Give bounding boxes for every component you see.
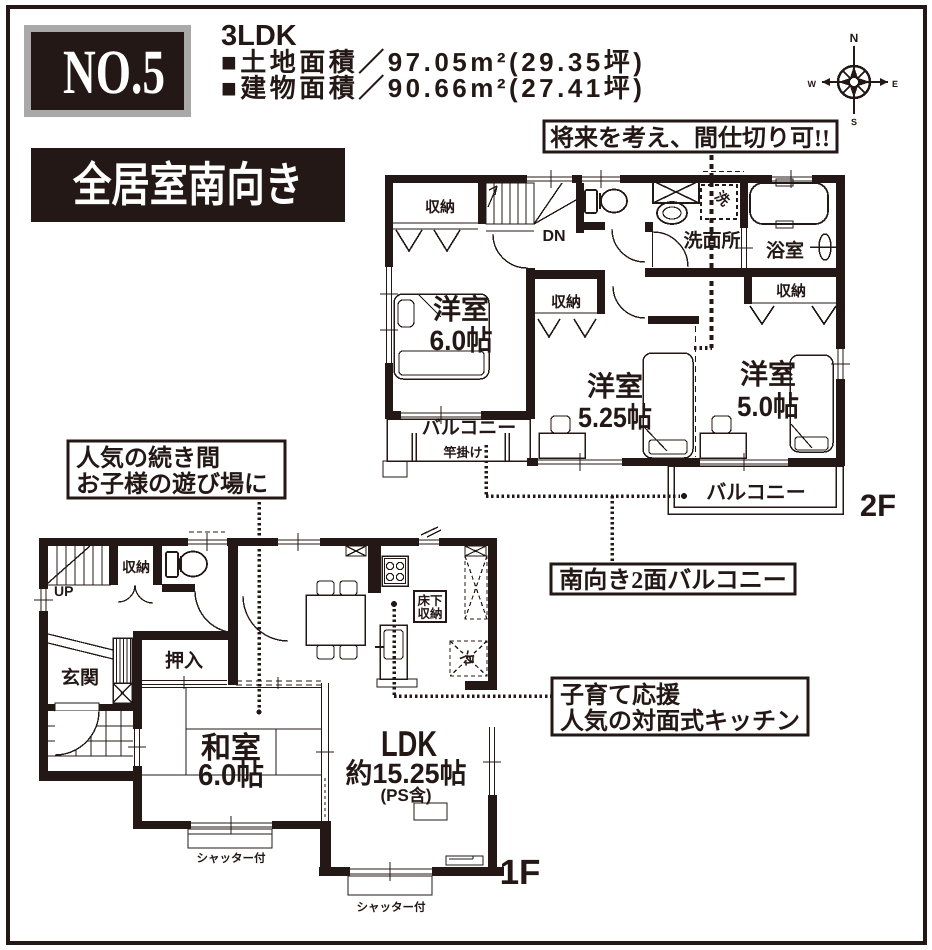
svg-text:収納: 収納 <box>776 282 806 300</box>
svg-text:お子様の遊び場に: お子様の遊び場に <box>76 471 268 498</box>
svg-text:竿掛け: 竿掛け <box>443 445 482 460</box>
svg-text:バルコニー: バルコニー <box>422 417 517 439</box>
svg-text:UP: UP <box>54 583 73 599</box>
svg-text:6.0帖: 6.0帖 <box>198 759 264 792</box>
svg-text:収納: 収納 <box>551 293 581 311</box>
svg-text:洗: 洗 <box>712 188 733 209</box>
svg-text:南向き2面バルコニー: 南向き2面バルコニー <box>559 567 787 594</box>
svg-text:洋室: 洋室 <box>587 371 643 402</box>
svg-text:全居室南向き: 全居室南向き <box>72 160 303 212</box>
svg-text:シャッター付: シャッター付 <box>197 852 266 865</box>
svg-text:(PS含): (PS含) <box>381 786 432 805</box>
svg-text:洋室: 洋室 <box>740 359 796 390</box>
svg-text:DN: DN <box>542 228 565 245</box>
svg-text:S: S <box>851 117 857 127</box>
svg-text:NO.5: NO.5 <box>63 37 165 107</box>
svg-text:押入: 押入 <box>165 650 203 672</box>
svg-text:収納: 収納 <box>417 607 442 621</box>
svg-text:子育て応援: 子育て応援 <box>560 682 681 709</box>
svg-text:床下: 床下 <box>417 594 443 608</box>
svg-text:N: N <box>850 31 859 45</box>
svg-text:人気の対面式キッチン: 人気の対面式キッチン <box>560 708 800 735</box>
svg-text:約15.25帖: 約15.25帖 <box>346 758 467 789</box>
svg-text:洋室: 洋室 <box>433 294 489 325</box>
svg-text:人気の続き間: 人気の続き間 <box>76 445 220 472</box>
svg-text:将来を考え、間仕切り可!!: 将来を考え、間仕切り可!! <box>550 125 830 152</box>
svg-text:■建物面積／90.66m²(27.41坪): ■建物面積／90.66m²(27.41坪) <box>221 73 645 103</box>
svg-text:玄関: 玄関 <box>61 667 99 689</box>
svg-text:シャッター付: シャッター付 <box>357 901 426 914</box>
svg-text:6.0帖: 6.0帖 <box>430 325 493 356</box>
svg-text:W: W <box>808 79 817 89</box>
svg-text:洗面所: 洗面所 <box>683 230 740 252</box>
svg-text:バルコニー: バルコニー <box>706 482 806 504</box>
svg-text:E: E <box>892 79 898 89</box>
svg-text:収納: 収納 <box>425 198 455 216</box>
svg-text:5.25帖: 5.25帖 <box>578 402 652 433</box>
svg-text:1F: 1F <box>500 853 541 892</box>
svg-text:2F: 2F <box>860 488 896 523</box>
svg-text:浴室: 浴室 <box>766 240 804 262</box>
svg-text:収納: 収納 <box>122 559 150 575</box>
